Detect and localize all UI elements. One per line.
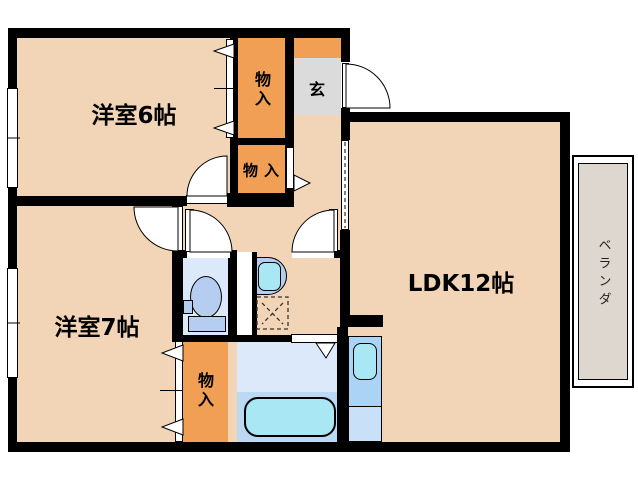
wall bbox=[228, 250, 237, 342]
room-label-closet-b7: 物入 bbox=[192, 372, 216, 410]
bathtub bbox=[244, 397, 336, 437]
wall bbox=[172, 250, 183, 342]
toilet-door-leaf bbox=[185, 209, 194, 252]
sliding-door bbox=[341, 140, 349, 230]
room-label-ldk: LDK12帖 bbox=[408, 264, 515, 298]
wall bbox=[340, 230, 350, 327]
room-label-genkan: 玄 bbox=[309, 76, 325, 100]
toilet-paper-holder bbox=[183, 300, 193, 314]
wall bbox=[337, 327, 348, 442]
wall bbox=[8, 28, 350, 38]
room-label-veranda: ベランダ bbox=[594, 238, 613, 310]
exterior-area bbox=[350, 0, 572, 112]
toilet-tank bbox=[188, 316, 226, 332]
closet-door-top bbox=[226, 39, 234, 138]
wall bbox=[347, 112, 568, 122]
closet-door-b7 bbox=[175, 341, 183, 442]
pipe-space bbox=[236, 252, 252, 335]
window bbox=[7, 88, 18, 188]
door-opening bbox=[186, 195, 228, 204]
door-gap bbox=[292, 250, 334, 258]
washbasin-bowl bbox=[258, 262, 281, 291]
room-label-closet-top: 物入 bbox=[249, 71, 273, 109]
wall bbox=[341, 28, 350, 63]
kitchen-sink bbox=[353, 343, 377, 380]
entrance-door-leaf bbox=[342, 63, 349, 108]
wall bbox=[227, 193, 287, 207]
wall bbox=[8, 28, 17, 88]
shoe-cabinet bbox=[294, 38, 341, 60]
washroom-door-leaf bbox=[329, 209, 338, 252]
room-label-bedroom7: 洋室7帖 bbox=[54, 308, 139, 342]
wall bbox=[560, 112, 570, 452]
wall bbox=[8, 378, 17, 452]
kitchen-counter bbox=[349, 406, 381, 441]
room-label-closet-mid: 物入 bbox=[243, 160, 285, 181]
wall bbox=[340, 315, 383, 327]
wall bbox=[172, 335, 292, 342]
wall bbox=[238, 138, 285, 145]
window bbox=[7, 268, 18, 378]
closet-door-mid bbox=[286, 147, 294, 189]
bathroom-door bbox=[291, 334, 338, 343]
wall bbox=[8, 196, 187, 206]
bathroom-floor-upper bbox=[237, 342, 337, 392]
door-opening bbox=[172, 206, 183, 251]
wall bbox=[8, 442, 570, 452]
toilet-bowl bbox=[190, 276, 222, 318]
room-label-bedroom6: 洋室6帖 bbox=[91, 96, 176, 130]
floor-plan: 洋室6帖 洋室7帖 LDK12帖 玄 物入 物入 物入 ベランダ bbox=[0, 0, 638, 480]
wall bbox=[341, 108, 350, 140]
